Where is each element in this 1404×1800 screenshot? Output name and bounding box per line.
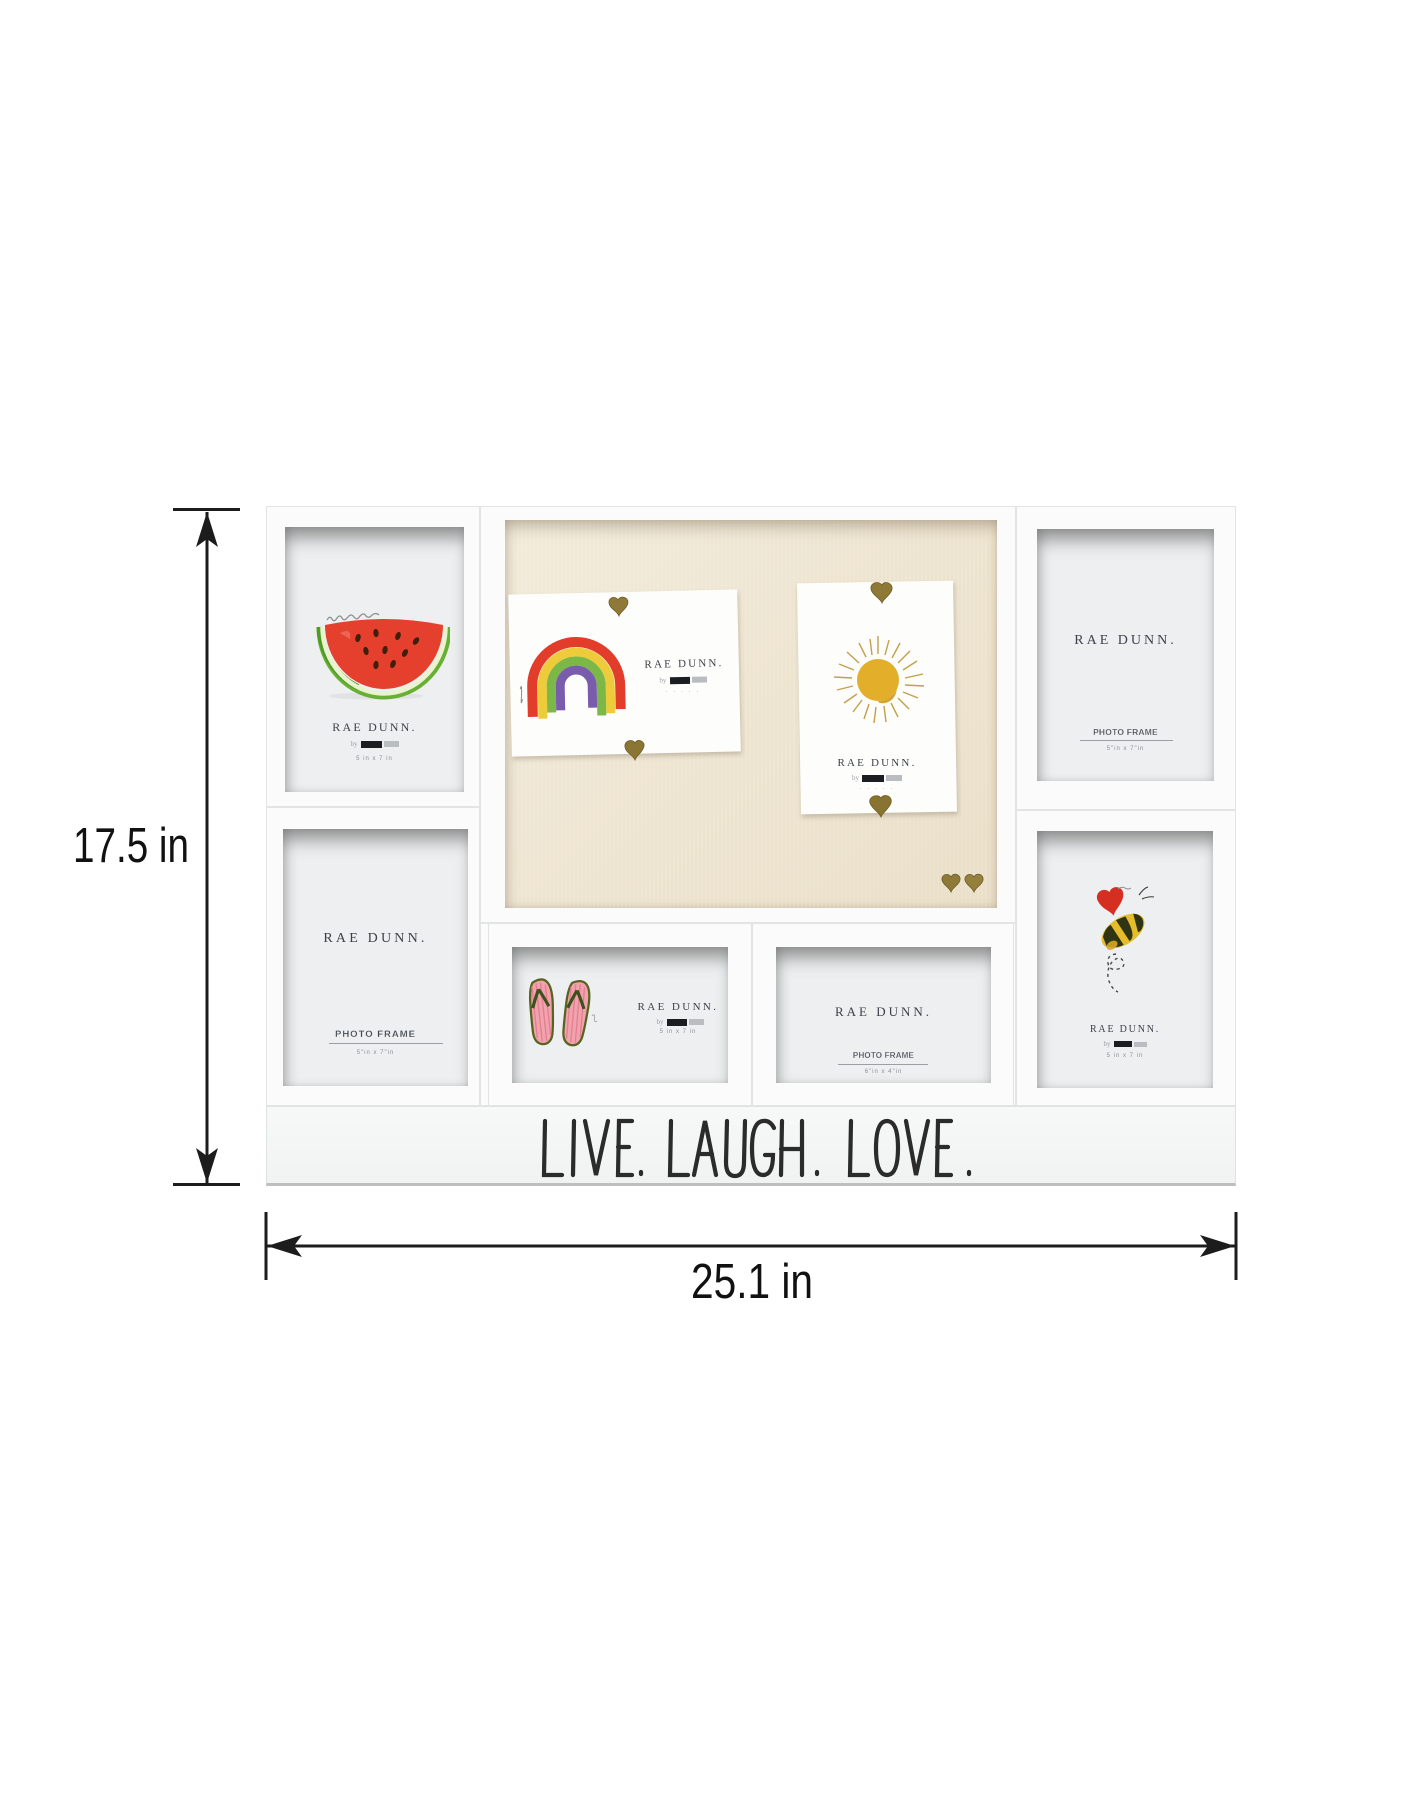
svg-text:25.1 in: 25.1 in: [691, 1255, 813, 1309]
svg-text:17.5 in: 17.5 in: [73, 819, 189, 873]
